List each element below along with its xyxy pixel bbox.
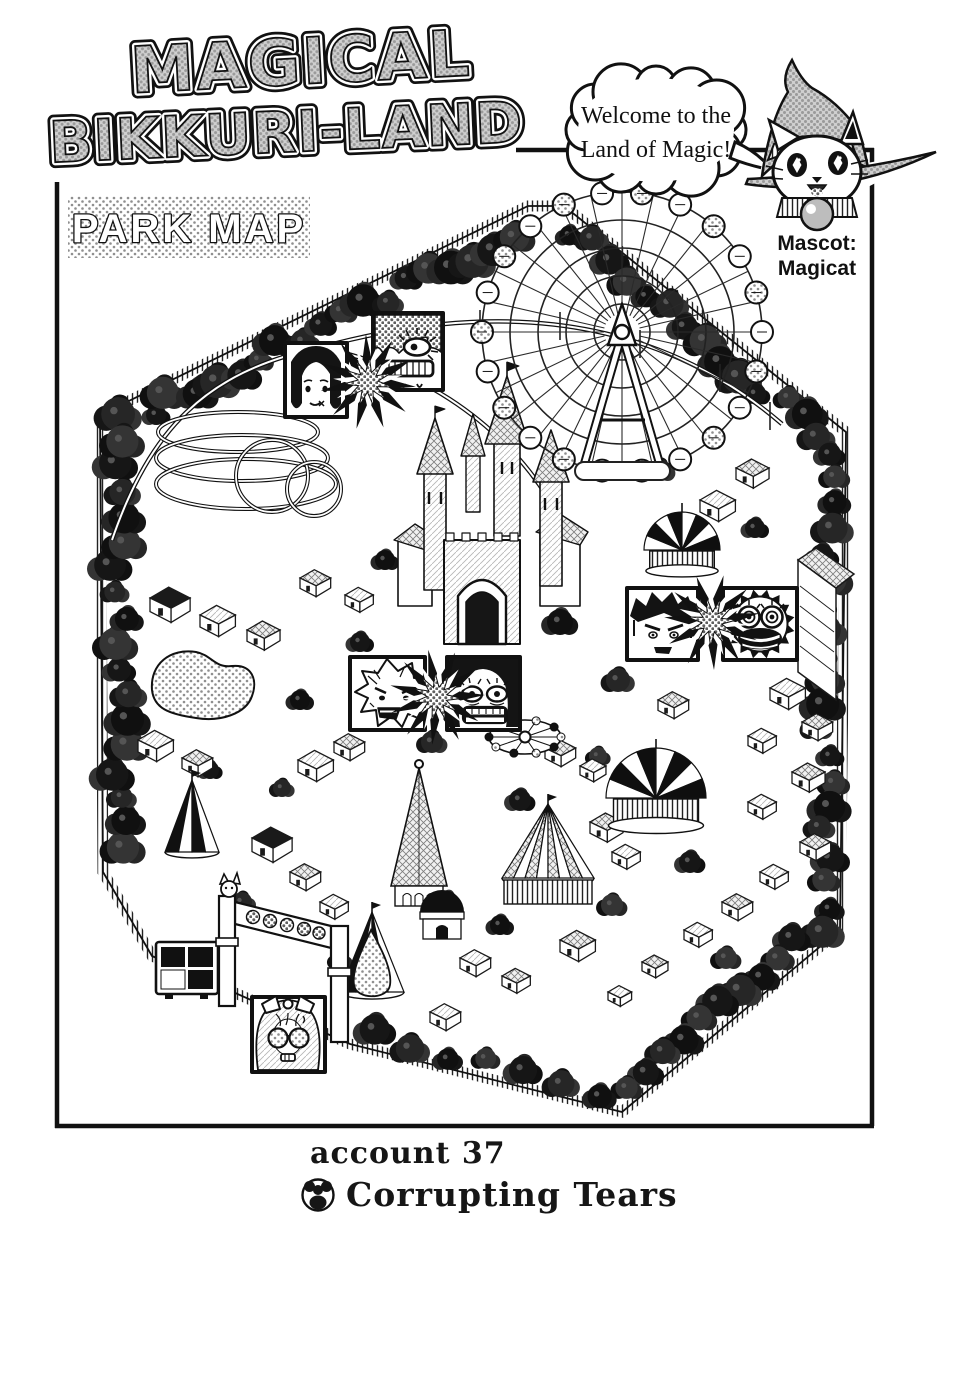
speech-bubble-line1: Welcome to the [581,103,731,129]
mascot-label-line2: Magicat [778,257,856,280]
character-inset-woman [285,343,347,417]
gate-post-right [331,926,348,1042]
gate-post-left [219,896,235,1006]
character-inset-girl-glasses [252,996,325,1072]
park-map-banner: PARK MAP [68,196,310,258]
cat-orb [801,198,833,230]
mascot-magicat: Mascot: Magicat [744,58,940,280]
glasses-lens [269,1029,288,1048]
glasses-lens [290,1029,309,1048]
cat-orb-shine [806,204,816,214]
mascot-label-line1: Mascot: [777,232,856,255]
speech-bubble-line2: Land of Magic! [581,137,732,163]
manga-page: Welcome to the Land of Magic! Mascot: Ma… [0,0,960,1378]
park-map-label: PARK MAP [72,207,306,251]
chapter-title: Corrupting Tears [346,1175,678,1214]
title-line2: BIKKURI-LAND [48,90,525,177]
character-inset-scowling-boy [627,588,698,660]
page-title: MAGICAL MAGICAL MAGICAL BIKKURI-LAND BIK… [48,17,525,176]
chapter-icon [300,1177,336,1213]
account-number: account 37 [310,1136,960,1171]
chapter-caption: account 37 Corrupting Tears [0,1136,960,1214]
cat-tongue [811,188,823,196]
speech-bubble: Welcome to the Land of Magic! [566,64,772,196]
